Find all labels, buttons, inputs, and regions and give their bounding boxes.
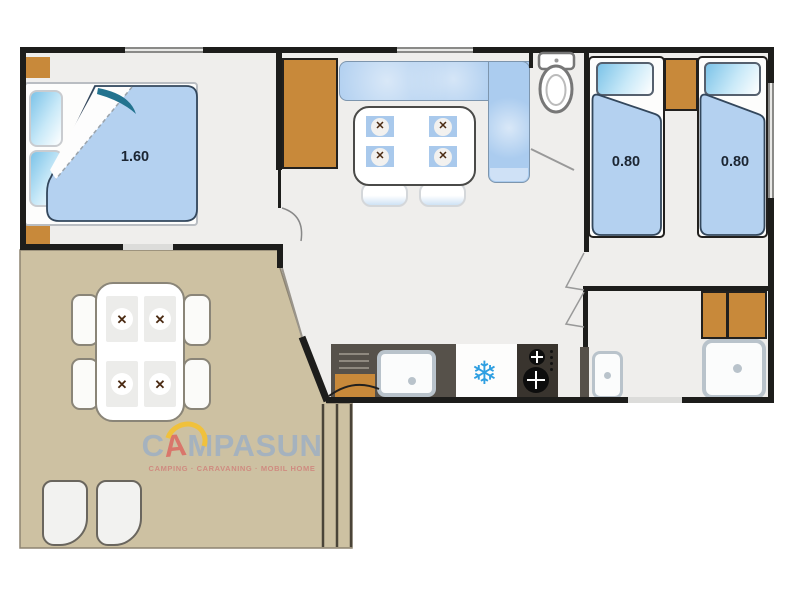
crossed-cutlery-icon: ✕ [155, 378, 166, 391]
kitchen-cabinet [335, 374, 375, 399]
campasun-logo-text: CAMPASUN [118, 430, 346, 461]
crossed-cutlery-icon: ✕ [438, 121, 447, 132]
pillow [596, 62, 654, 96]
stove-burner [523, 367, 549, 393]
lounge-chair [42, 480, 88, 546]
wall-bottom [326, 397, 774, 403]
wall-twin-bedroom [584, 47, 589, 252]
bedroom-corner-cabinet [24, 223, 50, 244]
crossed-cutlery-icon: ✕ [117, 378, 128, 391]
wall-left [20, 47, 26, 250]
window [397, 47, 473, 53]
terrace-plank-lines [323, 404, 351, 547]
single-bed-2-width-label: 0.80 [710, 154, 760, 170]
bathroom-partition [580, 347, 589, 401]
pillow [704, 62, 761, 96]
toilet-tank [539, 53, 574, 69]
wall-wc [529, 47, 533, 68]
logo-letter-c: C [142, 428, 165, 463]
lounge-chair [96, 480, 142, 546]
crossed-cutlery-icon: ✕ [117, 313, 128, 326]
washbasin-drain [604, 372, 611, 379]
sofa-arm [488, 61, 530, 183]
crossed-cutlery-icon: ✕ [155, 313, 166, 326]
shower-drain [733, 364, 742, 373]
logo-tagline: CAMPING · CARAVANING · MOBIL HOME [118, 464, 346, 473]
bathroom-cabinet [701, 291, 767, 339]
crossed-cutlery-icon: ✕ [438, 151, 447, 162]
wc-door-leaf [531, 149, 574, 170]
kitchen-sink [377, 350, 436, 397]
drawer-line [339, 360, 369, 362]
crossed-cutlery-icon: ✕ [375, 151, 384, 162]
wall-bathroom-top [586, 286, 768, 291]
terrace-chair [183, 358, 211, 410]
wall-bedroom-living [276, 47, 282, 170]
bedside-cabinet [664, 58, 698, 111]
double-bed-width-label: 1.60 [109, 149, 161, 165]
snowflake-icon: ❄ [471, 357, 498, 389]
bedroom-door-swing-arc [282, 208, 302, 241]
entrance-door-leaf [282, 268, 302, 337]
wall-diagonal [302, 337, 327, 401]
entry-door-opening [628, 397, 682, 403]
twin-bedroom-door-swing [566, 253, 584, 290]
cabinet-divider [726, 291, 729, 339]
toilet-bowl [540, 66, 572, 112]
stove-knob-dots [550, 350, 553, 353]
drawer-line [339, 367, 369, 369]
window [125, 47, 203, 53]
wall-bathroom-left [583, 286, 588, 347]
wall-terrace-stub [277, 250, 283, 268]
wardrobe [282, 58, 338, 169]
drawer-line [339, 353, 369, 355]
toilet-bowl-inner [547, 75, 566, 105]
window [768, 83, 774, 198]
crossed-cutlery-icon: ✕ [375, 121, 384, 132]
wall-bedroom-living-thin [278, 168, 281, 208]
sink-drain [408, 377, 416, 385]
sofa-cushion [490, 168, 528, 181]
bathroom-door-swing [566, 292, 584, 327]
pillow [29, 90, 63, 147]
terrace-chair [183, 294, 211, 346]
toilet-button [555, 59, 559, 63]
bedroom-corner-cabinet [24, 57, 50, 78]
mobile-home-floor-plan: CAMPASUN CAMPING · CARAVANING · MOBIL HO… [0, 0, 800, 600]
campasun-logo: CAMPASUN CAMPING · CARAVANING · MOBIL HO… [118, 430, 346, 473]
stove-burner [529, 349, 545, 365]
single-bed-1-width-label: 0.80 [601, 154, 651, 170]
pillow [29, 150, 63, 207]
logo-letters-rest: MPASUN [187, 428, 322, 463]
terrace-door-opening [123, 244, 173, 250]
